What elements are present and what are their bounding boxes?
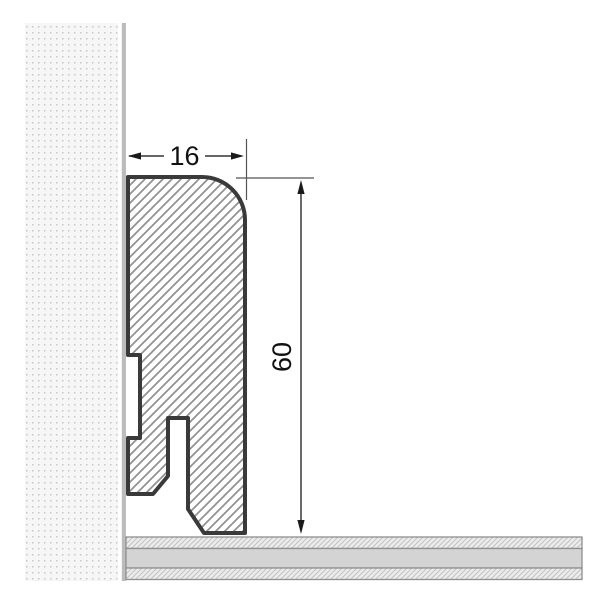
skirting-profile-section xyxy=(128,177,245,533)
height-dimension: 60 xyxy=(236,178,314,534)
width-dimension-label: 16 xyxy=(169,141,199,171)
diagram-canvas: 16 60 xyxy=(0,0,604,604)
width-dim-arrow-right-icon xyxy=(231,152,244,159)
width-dim-arrow-left-icon xyxy=(128,152,141,159)
wall-texture xyxy=(25,23,118,581)
skirting-profile-diagram: 16 60 xyxy=(0,0,604,604)
height-dimension-label: 60 xyxy=(267,342,297,372)
height-dim-arrow-up-icon xyxy=(297,180,304,194)
height-dim-arrow-down-icon xyxy=(297,520,304,534)
floor-layer-middle xyxy=(126,549,582,569)
floor-layer-bottom xyxy=(126,568,582,580)
wall-surface-line xyxy=(122,23,126,581)
floor-layer-top xyxy=(126,537,582,549)
floor-layers xyxy=(126,537,582,580)
